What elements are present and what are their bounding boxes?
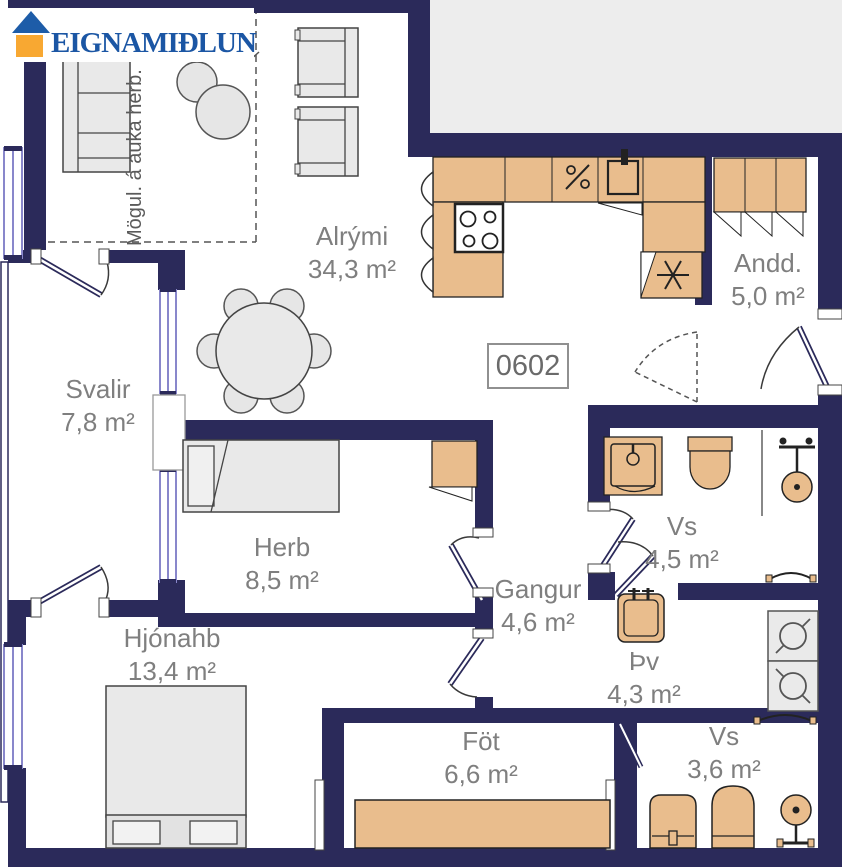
- towel-rail-icon: [766, 573, 816, 582]
- house-roof-icon: [12, 11, 50, 33]
- room-area: 6,6 m²: [444, 758, 518, 791]
- exterior-area: [430, 0, 842, 133]
- room-area: 4,6 m²: [495, 606, 582, 639]
- room-area: 34,3 m²: [308, 253, 396, 286]
- room-name: Vs: [687, 720, 761, 753]
- dryer-icon: [768, 661, 818, 711]
- toilet-icon: [688, 437, 732, 489]
- room-area: 13,4 m²: [124, 655, 221, 688]
- room-label-alrymi: Alrými 34,3 m²: [308, 220, 396, 286]
- fridge-freezer-icon: [641, 252, 702, 298]
- fot-furniture: [355, 800, 610, 848]
- laundry-sink-icon: [618, 588, 664, 642]
- room-area: 5,0 m²: [731, 280, 805, 313]
- room-label-fot: Föt 6,6 m²: [444, 725, 518, 791]
- hjonahb-furniture: [106, 686, 246, 848]
- closet-icon: [429, 441, 477, 501]
- shower-icon: [779, 438, 815, 503]
- room-name: Andd.: [731, 247, 805, 280]
- entry-wardrobe: [714, 158, 806, 236]
- washer-icon: [768, 611, 818, 661]
- room-name: Herb: [245, 531, 319, 564]
- door-balcony-top-icon: [39, 259, 109, 295]
- window-bedroom-icon: [4, 642, 22, 770]
- room-label-vs2: Vs 3,6 m²: [687, 720, 761, 786]
- room-label-herb: Herb 8,5 m²: [245, 531, 319, 597]
- cabinet-door-fold: [598, 203, 642, 215]
- room-area: 3,6 m²: [687, 753, 761, 786]
- room-name: Föt: [444, 725, 518, 758]
- house-body-icon: [16, 35, 43, 57]
- room-label-vs1: Vs 4,5 m²: [645, 510, 719, 576]
- kitchen: [422, 149, 706, 298]
- bar-stools-icon: [422, 172, 434, 292]
- armchair-icon: [295, 107, 358, 176]
- room-name: Svalir: [61, 373, 135, 406]
- door-vs1-icon: [600, 509, 633, 570]
- window-living-icon: [4, 146, 22, 260]
- plant-icon: [196, 85, 250, 139]
- room-label-thv: Þv 4,3 m²: [607, 645, 681, 711]
- unit-number: 0602: [487, 343, 569, 389]
- shower-icon: [777, 795, 814, 847]
- toilet-icon: [712, 786, 754, 848]
- room-name: Þv: [607, 645, 681, 678]
- room-area: 8,5 m²: [245, 564, 319, 597]
- door-entrance-icon: [761, 327, 829, 391]
- dining-table-icon: [197, 289, 331, 413]
- door-andd-dashed-icon: [635, 332, 697, 402]
- armchair-icon: [295, 28, 358, 97]
- sink-vanity-icon: [650, 795, 696, 848]
- room-name: Gangur: [495, 573, 582, 606]
- room-area: 4,3 m²: [607, 678, 681, 711]
- wall-panel: [153, 395, 185, 470]
- room-name: Hjónahb: [124, 622, 221, 655]
- door-hjonahb-icon: [450, 638, 482, 697]
- room-name: Vs: [645, 510, 719, 543]
- room-name: Alrými: [308, 220, 396, 253]
- floor-plan: EIGNAMIÐLUN Mögul. á auka herb. 0602 Alr…: [0, 0, 842, 867]
- room-area: 7,8 m²: [61, 406, 135, 439]
- double-bed-icon: [106, 686, 246, 848]
- window-balcony-upper-icon: [160, 287, 176, 396]
- wardrobe-icon: [355, 800, 610, 848]
- stove-icon: [455, 204, 503, 252]
- sofa-icon: [63, 52, 130, 172]
- room-label-gangur: Gangur 4,6 m²: [495, 573, 582, 639]
- sink-vanity-icon: [604, 437, 662, 495]
- room-label-hjonahb: Hjónahb 13,4 m²: [124, 622, 221, 688]
- herb-furniture: [183, 440, 477, 512]
- room-area: 4,5 m²: [645, 543, 719, 576]
- door-balcony-bottom-icon: [39, 567, 108, 602]
- room-label-svalir: Svalir 7,8 m²: [61, 373, 135, 439]
- single-bed-icon: [183, 440, 339, 512]
- extra-room-note: Mögul. á auka herb.: [124, 14, 160, 246]
- room-label-andd: Andd. 5,0 m²: [731, 247, 805, 313]
- window-balcony-lower-icon: [160, 467, 176, 584]
